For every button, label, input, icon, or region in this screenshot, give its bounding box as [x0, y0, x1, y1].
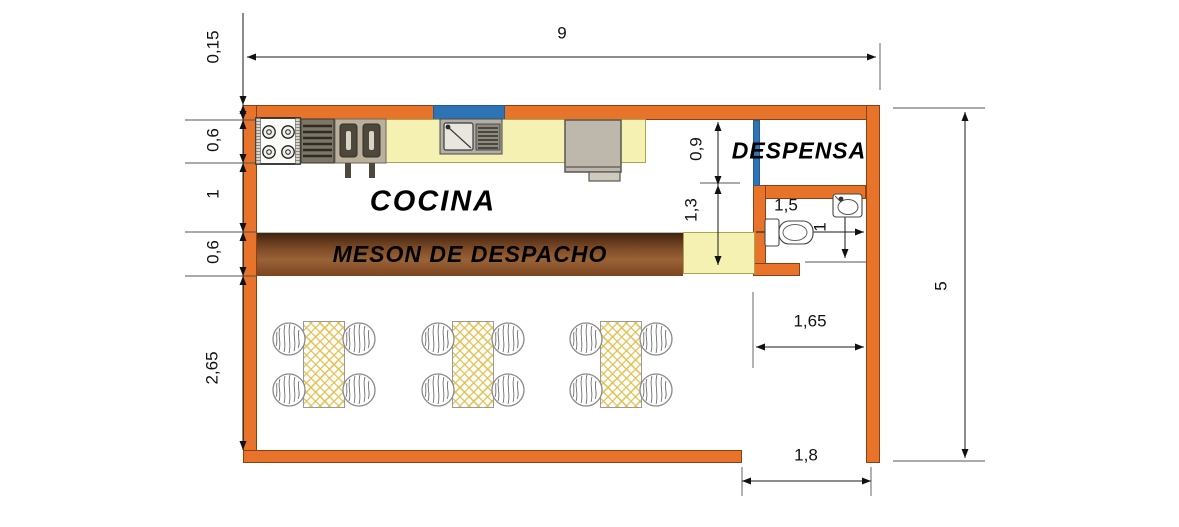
- dim-kitchen-aisle: 1: [205, 189, 222, 198]
- fryer-icon: [335, 119, 386, 178]
- dim-pantry-to-counter: 1,3: [683, 198, 700, 222]
- dim-counter-depth: 0,6: [205, 128, 222, 152]
- washbasin-icon: [833, 194, 862, 217]
- dim-bathroom-width: 1,65: [793, 313, 826, 330]
- chair-icon: [343, 374, 375, 406]
- dim-toilet-length: 1,5: [774, 197, 798, 214]
- dimension-total-width: [247, 43, 880, 90]
- stove-icon: [256, 118, 300, 164]
- dim-total-width: 9: [557, 25, 566, 42]
- chair-icon: [343, 323, 375, 355]
- plan-graphics: [0, 0, 1179, 527]
- chairs: [273, 323, 672, 406]
- chair-icon: [273, 374, 305, 406]
- pantry-label: DESPENSA: [732, 140, 867, 163]
- chair-icon: [422, 374, 454, 406]
- dimension-door-opening: [742, 467, 871, 496]
- chair-icon: [422, 323, 454, 355]
- toilet-icon: [765, 219, 813, 246]
- chair-icon: [492, 374, 524, 406]
- chair-icon: [273, 323, 305, 355]
- dim-serving-counter-depth: 0,6: [205, 240, 222, 264]
- grill-icon: [301, 119, 334, 163]
- dim-wall-thickness: 0,15: [205, 30, 222, 63]
- chair-icon: [570, 323, 602, 355]
- chair-icon: [570, 374, 602, 406]
- dim-pantry-depth: 0,9: [688, 137, 705, 161]
- chair-icon: [640, 323, 672, 355]
- dim-dining-depth: 2,65: [204, 351, 221, 384]
- dim-bathroom-inner: 1: [812, 222, 829, 231]
- chair-icon: [492, 323, 524, 355]
- refrigerator-icon: [565, 120, 621, 181]
- kitchen-sink-icon: [440, 119, 502, 154]
- dim-total-height: 5: [933, 281, 950, 290]
- dim-door-opening: 1,8: [794, 447, 818, 464]
- chair-icon: [640, 374, 672, 406]
- kitchen-label: COCINA: [370, 188, 496, 217]
- floor-plan: MESON DE DESPACHO: [0, 0, 1179, 527]
